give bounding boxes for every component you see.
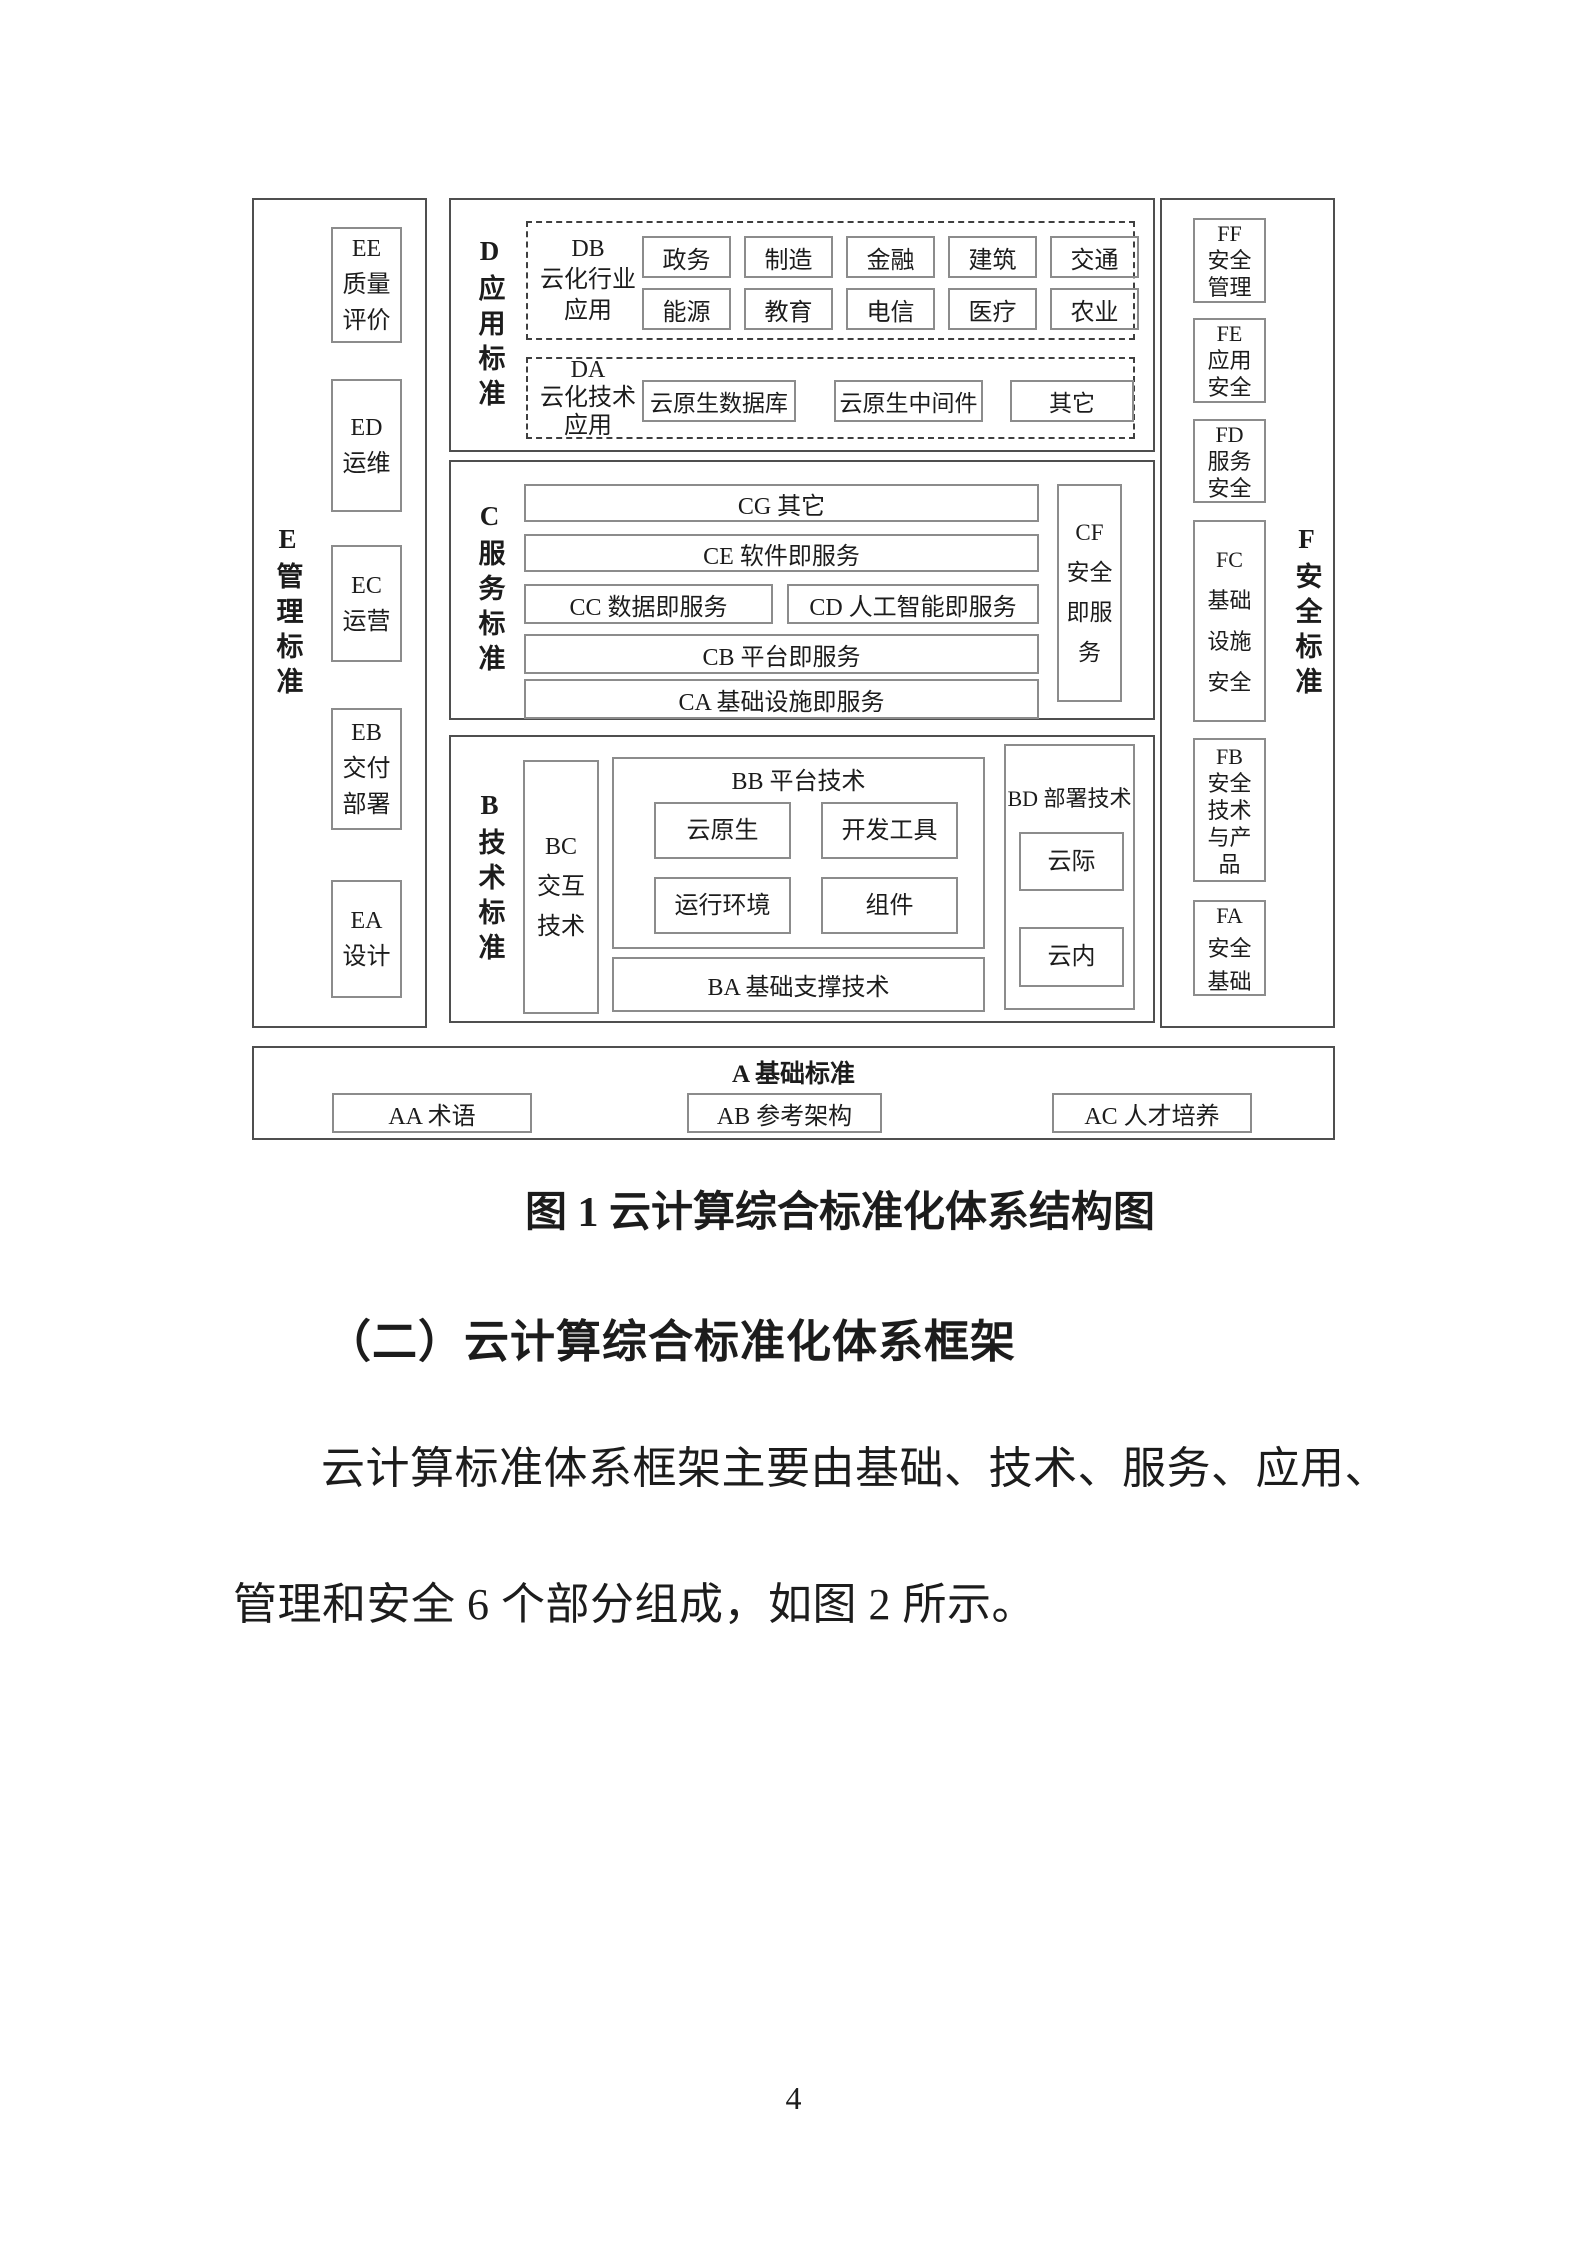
body-paragraph-line1: 云计算标准体系框架主要由基础、技术、服务、应用、 — [321, 1432, 1389, 1496]
section-c-label: C服务标准 — [471, 501, 510, 679]
box-label: AB 参考架构 — [717, 1096, 852, 1131]
box-fa-line: 基础 — [1207, 968, 1251, 995]
group-db-label: DB 云化行业 应用 — [534, 223, 642, 338]
box-label: AA 术语 — [388, 1096, 475, 1131]
box-eb-line: 部署 — [343, 790, 391, 820]
box-fa-line: 安全 — [1207, 935, 1251, 962]
box-aa-terminology: AA 术语 — [332, 1093, 532, 1133]
box-inter-cloud: 云际 — [1019, 832, 1124, 891]
box-bd-title: BD 部署技术 — [1006, 784, 1133, 814]
box-bc-interaction-tech: BC 交互 技术 — [523, 760, 599, 1014]
box-ff-line: 管理 — [1207, 274, 1251, 301]
box-ee-line: 质量 — [343, 270, 391, 300]
box-fe-line: FE — [1217, 320, 1243, 347]
box-fa: FA 安全 基础 — [1193, 900, 1266, 996]
box-fb-line: 技术 — [1207, 797, 1251, 824]
box-da-other: 其它 — [1010, 380, 1134, 422]
box-label: CC 数据即服务 — [569, 587, 727, 622]
section-heading: （二）云计算综合标准化体系框架 — [326, 1305, 1016, 1370]
group-db-label-line: 应用 — [564, 296, 612, 327]
group-db-industry-apps: DB 云化行业 应用 政务 制造 金融 建筑 交通 能源 教育 电信 医疗 农业 — [526, 221, 1135, 340]
box-cloud-native-middleware: 云原生中间件 — [834, 380, 983, 422]
box-ec-line: EC — [351, 571, 382, 601]
box-ca-iaas: CA 基础设施即服务 — [524, 679, 1039, 719]
box-industry-label: 政务 — [663, 240, 711, 275]
box-industry-transport: 交通 — [1050, 236, 1139, 278]
box-industry-agriculture: 农业 — [1050, 288, 1139, 330]
box-components: 组件 — [821, 877, 958, 934]
box-label: 其它 — [1049, 384, 1095, 418]
box-label: BA 基础支撑技术 — [707, 967, 889, 1002]
box-eb: EB 交付 部署 — [331, 708, 402, 830]
group-da-label-line: DA — [571, 356, 606, 384]
box-industry-telecom: 电信 — [846, 288, 935, 330]
box-industry-construction: 建筑 — [948, 236, 1037, 278]
box-runtime-env: 运行环境 — [654, 877, 791, 934]
box-fb-line: FB — [1216, 743, 1243, 770]
box-bb-platform-tech: BB 平台技术 云原生 开发工具 运行环境 组件 — [612, 757, 985, 949]
box-industry-finance: 金融 — [846, 236, 935, 278]
box-fb-line: 安全 — [1207, 770, 1251, 797]
box-ea: EA 设计 — [331, 880, 402, 998]
box-label: CD 人工智能即服务 — [809, 587, 1016, 622]
section-c-service: C服务标准 CG 其它 CE 软件即服务 CC 数据即服务 CD 人工智能即服务… — [449, 460, 1155, 720]
box-bd-deployment-tech: BD 部署技术 云际 云内 — [1004, 744, 1135, 1010]
box-eb-line: 交付 — [343, 754, 391, 784]
box-eb-line: EB — [351, 718, 382, 748]
box-ff: FF 安全 管理 — [1193, 218, 1266, 303]
box-intra-cloud: 云内 — [1019, 927, 1124, 987]
box-cc-daas: CC 数据即服务 — [524, 584, 773, 624]
box-label: 云原生 — [687, 816, 759, 846]
box-ac-talent-training: AC 人才培养 — [1052, 1093, 1252, 1133]
box-label: CB 平台即服务 — [702, 637, 860, 672]
box-label: 开发工具 — [842, 816, 938, 846]
box-industry-medical: 医疗 — [948, 288, 1037, 330]
box-cf-line: CF — [1075, 520, 1103, 546]
box-cf-secaas: CF 安全 即服 务 — [1057, 484, 1122, 702]
box-ab-reference-architecture: AB 参考架构 — [687, 1093, 882, 1133]
body-paragraph-line2: 管理和安全 6 个部分组成，如图 2 所示。 — [233, 1568, 1036, 1632]
box-ed: ED 运维 — [331, 379, 402, 512]
box-label: 运行环境 — [675, 891, 771, 921]
box-bb-title: BB 平台技术 — [614, 767, 983, 797]
box-cloud-native-database: 云原生数据库 — [642, 380, 796, 422]
box-industry-label: 能源 — [663, 292, 711, 327]
box-fd-line: 服务 — [1207, 448, 1251, 475]
box-industry-label: 交通 — [1071, 240, 1119, 275]
section-e-label: E管理标准 — [269, 524, 308, 702]
box-ff-line: 安全 — [1207, 247, 1251, 274]
box-industry-label: 教育 — [765, 292, 813, 327]
box-ee-line: 评价 — [343, 306, 391, 336]
section-a-title: A 基础标准 — [254, 1054, 1333, 1090]
box-industry-education: 教育 — [744, 288, 833, 330]
box-bc-line: 交互 — [537, 872, 585, 902]
box-cf-line: 安全 — [1067, 560, 1113, 586]
box-ea-line: 设计 — [343, 942, 391, 972]
box-fe-line: 安全 — [1207, 374, 1251, 401]
box-fe: FE 应用 安全 — [1193, 318, 1266, 403]
group-da-label: DA 云化技术 应用 — [534, 359, 642, 437]
box-fc-line: 设施 — [1207, 628, 1251, 655]
page-number: 4 — [0, 2080, 1587, 2117]
section-b-label-wrap: B技术标准 — [468, 737, 512, 1021]
group-db-label-line: 云化行业 — [540, 265, 636, 296]
box-ba-basic-support-tech: BA 基础支撑技术 — [612, 957, 985, 1012]
box-fd-line: FD — [1215, 421, 1243, 448]
section-e-label-wrap: E管理标准 — [262, 200, 314, 1026]
box-label: 云际 — [1048, 847, 1096, 877]
box-industry-label: 医疗 — [969, 292, 1017, 327]
box-ff-line: FF — [1217, 220, 1241, 247]
document-page: E管理标准 EE 质量 评价 ED 运维 EC 运营 EB 交付 部署 EA 设… — [0, 0, 1587, 2245]
group-db-label-line: DB — [571, 234, 604, 265]
box-ec: EC 运营 — [331, 545, 402, 662]
box-ea-line: EA — [351, 906, 383, 936]
box-fa-line: FA — [1216, 902, 1243, 929]
box-ee: EE 质量 评价 — [331, 227, 402, 343]
box-industry-label: 制造 — [765, 240, 813, 275]
figure-cloud-standard-structure: E管理标准 EE 质量 评价 ED 运维 EC 运营 EB 交付 部署 EA 设… — [252, 198, 1335, 1142]
box-label: AC 人才培养 — [1084, 1096, 1219, 1131]
box-fb-line: 品 — [1218, 851, 1240, 878]
box-ce-saas: CE 软件即服务 — [524, 534, 1039, 572]
box-industry-gov: 政务 — [642, 236, 731, 278]
box-ed-line: ED — [351, 413, 383, 443]
box-fc-line: 安全 — [1207, 669, 1251, 696]
section-d-application: D应用标准 DB 云化行业 应用 政务 制造 金融 建筑 交通 能源 教育 电信… — [449, 198, 1155, 452]
box-cg-other: CG 其它 — [524, 484, 1039, 522]
box-industry-label: 建筑 — [969, 240, 1017, 275]
box-bc-line: 技术 — [537, 912, 585, 942]
box-cf-line: 即服 — [1067, 600, 1113, 626]
box-industry-label: 金融 — [867, 240, 915, 275]
figure-caption: 图 1 云计算综合标准化体系结构图 — [252, 1178, 1428, 1239]
section-b-technology: B技术标准 BC 交互 技术 BB 平台技术 云原生 开发工具 运行环境 组件 … — [449, 735, 1155, 1023]
box-cf-line: 务 — [1078, 640, 1101, 666]
box-ee-line: EE — [352, 234, 381, 264]
box-fd: FD 服务 安全 — [1193, 419, 1266, 503]
box-label: CE 软件即服务 — [703, 536, 860, 571]
box-fd-line: 安全 — [1207, 475, 1251, 502]
group-da-label-line: 云化技术 — [540, 384, 636, 412]
section-d-label-wrap: D应用标准 — [468, 200, 512, 450]
box-ec-line: 运营 — [343, 607, 391, 637]
box-label: 组件 — [866, 891, 914, 921]
box-label: CA 基础设施即服务 — [678, 682, 884, 717]
section-c-label-wrap: C服务标准 — [468, 462, 512, 718]
box-ed-line: 运维 — [343, 449, 391, 479]
box-bc-line: BC — [545, 832, 577, 862]
box-industry-manufacturing: 制造 — [744, 236, 833, 278]
box-cb-paas: CB 平台即服务 — [524, 634, 1039, 674]
box-industry-label: 电信 — [867, 292, 915, 327]
group-da-tech-apps: DA 云化技术 应用 云原生数据库 云原生中间件 其它 — [526, 357, 1135, 439]
box-fb: FB 安全 技术 与产 品 — [1193, 738, 1266, 882]
box-label: CG 其它 — [738, 486, 825, 521]
box-fc-line: FC — [1216, 546, 1243, 573]
box-label: 云原生中间件 — [840, 384, 978, 418]
box-fc: FC 基础 设施 安全 — [1193, 520, 1266, 722]
section-d-label: D应用标准 — [471, 236, 510, 414]
box-label: 云原生数据库 — [650, 384, 788, 418]
box-industry-energy: 能源 — [642, 288, 731, 330]
section-b-label: B技术标准 — [471, 790, 510, 968]
section-a-basic: A 基础标准 AA 术语 AB 参考架构 AC 人才培养 — [252, 1046, 1335, 1140]
box-label: 云内 — [1048, 942, 1096, 972]
box-fb-line: 与产 — [1207, 824, 1251, 851]
box-cloud-native: 云原生 — [654, 802, 791, 859]
box-industry-label: 农业 — [1071, 292, 1119, 327]
box-dev-tools: 开发工具 — [821, 802, 958, 859]
box-fe-line: 应用 — [1207, 347, 1251, 374]
group-da-label-line: 应用 — [564, 412, 612, 440]
box-fc-line: 基础 — [1207, 587, 1251, 614]
box-cd-aiaas: CD 人工智能即服务 — [787, 584, 1039, 624]
section-f-label: F安全标准 — [1288, 524, 1327, 702]
section-f-label-wrap: F安全标准 — [1284, 200, 1330, 1026]
